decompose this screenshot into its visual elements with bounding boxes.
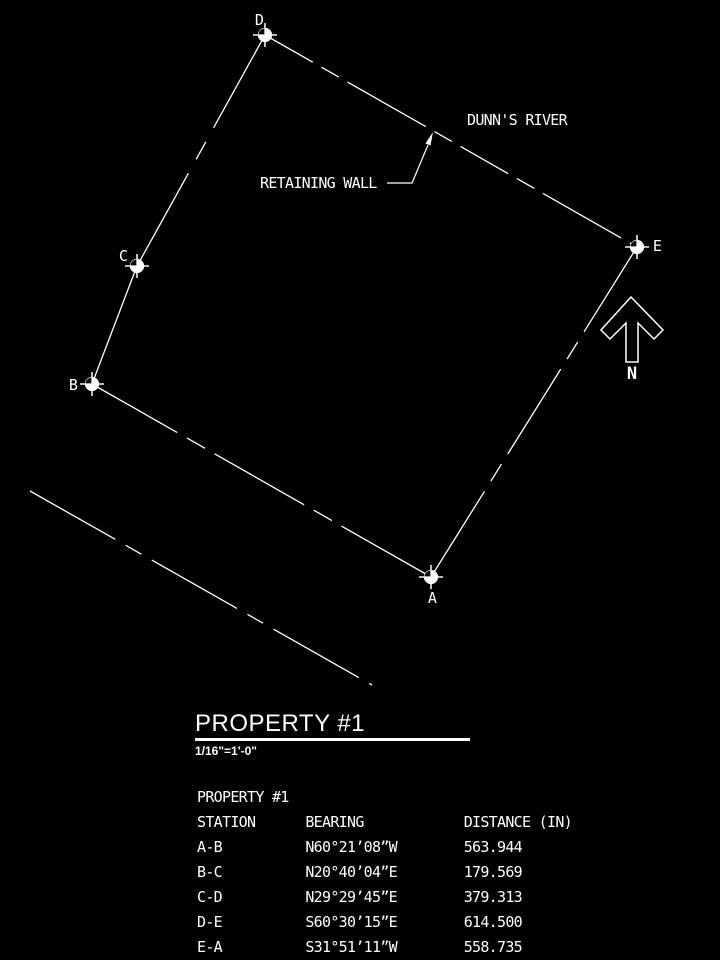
distance-cell: 179.569 — [464, 860, 522, 885]
distance-cell: 563.944 — [464, 835, 522, 860]
distance-cell: 614.500 — [464, 910, 522, 935]
retaining-wall-leader — [387, 145, 428, 183]
distance-cell: 558.735 — [464, 935, 522, 960]
table-header-row: STATION BEARING DISTANCE (IN) — [197, 810, 572, 835]
table-title: PROPERTY #1 — [197, 788, 289, 806]
table-title-row: PROPERTY #1 — [197, 785, 572, 810]
table-row: D-E S60°30’15”E 614.500 — [197, 910, 572, 935]
boundary-line-a-b — [92, 384, 431, 577]
station-cell: B-C — [197, 860, 297, 885]
column-header-distance: DISTANCE (IN) — [464, 810, 572, 835]
title-block: PROPERTY #1 1/16"=1'-0" — [195, 711, 475, 758]
boundary-line-b-c — [92, 266, 137, 384]
table-row: E-A S31°51’11”W 558.735 — [197, 935, 572, 960]
boundary-line-e-a — [431, 247, 637, 577]
scale-label: 1/16"=1'-0" — [195, 745, 475, 758]
station-cell: D-E — [197, 910, 297, 935]
title-underline — [195, 738, 470, 741]
point-marker-c — [125, 254, 149, 278]
point-label-c: C — [119, 247, 127, 265]
table-row: B-C N20°40’04”E 179.569 — [197, 860, 572, 885]
table-row: A-B N60°21’08”W 563.944 — [197, 835, 572, 860]
column-header-station: STATION — [197, 810, 297, 835]
station-cell: A-B — [197, 835, 297, 860]
point-marker-e — [625, 235, 649, 259]
drawing-title: PROPERTY #1 — [195, 711, 475, 737]
station-cell: E-A — [197, 935, 297, 960]
offset-dashed-line — [30, 491, 372, 685]
table-row: C-D N29°29’45”E 379.313 — [197, 885, 572, 910]
distance-cell: 379.313 — [464, 885, 522, 910]
point-label-d: D — [255, 11, 264, 29]
point-label-b: B — [69, 376, 78, 394]
bearing-cell: S31°51’11”W — [305, 935, 455, 960]
point-marker-b — [80, 372, 104, 396]
north-label: N — [627, 364, 637, 384]
north-arrow-icon — [601, 297, 663, 362]
bearing-cell: N29°29’45”E — [305, 885, 455, 910]
point-marker-a — [419, 565, 443, 589]
point-label-a: A — [428, 589, 437, 607]
point-label-e: E — [653, 237, 662, 255]
retaining-wall-label: RETAINING WALL — [260, 174, 377, 192]
bearing-cell: N20°40’04”E — [305, 860, 455, 885]
river-label: DUNN'S RIVER — [467, 111, 569, 129]
station-cell: C-D — [197, 885, 297, 910]
survey-table: PROPERTY #1 STATION BEARING DISTANCE (IN… — [197, 785, 572, 960]
leader-arrowhead-icon — [426, 132, 434, 146]
bearing-cell: S60°30’15”E — [305, 910, 455, 935]
cad-plot-canvas: A B C D E DUNN'S RIVER RETAINING WALL N … — [0, 0, 720, 960]
column-header-bearing: BEARING — [305, 810, 455, 835]
boundary-line-c-d — [137, 35, 265, 266]
boundary-line-d-e — [265, 35, 637, 247]
bearing-cell: N60°21’08”W — [305, 835, 455, 860]
